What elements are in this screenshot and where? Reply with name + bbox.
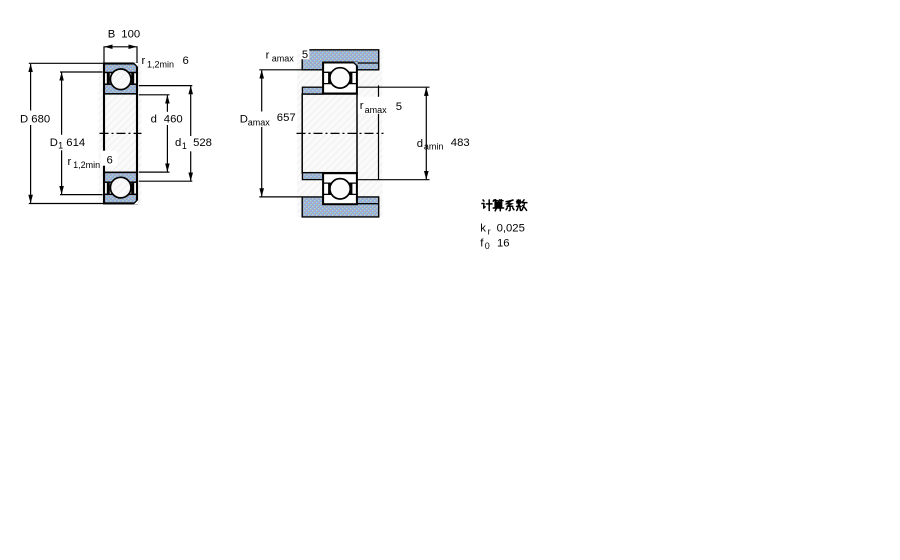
svg-text:1,2min: 1,2min [73,160,100,170]
svg-text:amax: amax [272,54,295,64]
svg-text:d: d [175,137,181,149]
svg-text:r: r [360,100,364,112]
svg-text:6: 6 [183,55,189,67]
svg-text:amin: amin [424,142,444,152]
svg-text:460: 460 [164,114,183,126]
svg-text:1: 1 [182,141,187,151]
svg-text:16: 16 [497,237,510,249]
svg-text:r: r [266,50,270,62]
svg-text:483: 483 [451,137,470,149]
svg-text:k: k [480,223,486,235]
svg-text:d: d [417,138,423,150]
svg-text:680: 680 [31,113,50,125]
svg-text:100: 100 [121,29,140,41]
svg-text:B: B [108,29,116,41]
svg-text:amax: amax [365,105,388,115]
svg-text:r: r [142,55,146,67]
svg-text:r: r [488,227,491,237]
svg-text:D: D [20,113,28,125]
svg-text:5: 5 [302,49,308,61]
svg-text:r: r [68,156,72,168]
svg-text:0: 0 [485,241,490,251]
svg-text:5: 5 [396,101,402,113]
svg-text:D: D [50,137,58,149]
svg-text:657: 657 [277,112,296,124]
svg-text:d: d [151,114,157,126]
svg-text:1: 1 [58,141,63,151]
svg-text:0,025: 0,025 [497,223,525,235]
svg-text:528: 528 [193,137,212,149]
svg-text:1,2min: 1,2min [147,59,174,69]
svg-text:6: 6 [107,154,113,166]
svg-text:amax: amax [248,118,271,128]
svg-text:614: 614 [66,137,85,149]
